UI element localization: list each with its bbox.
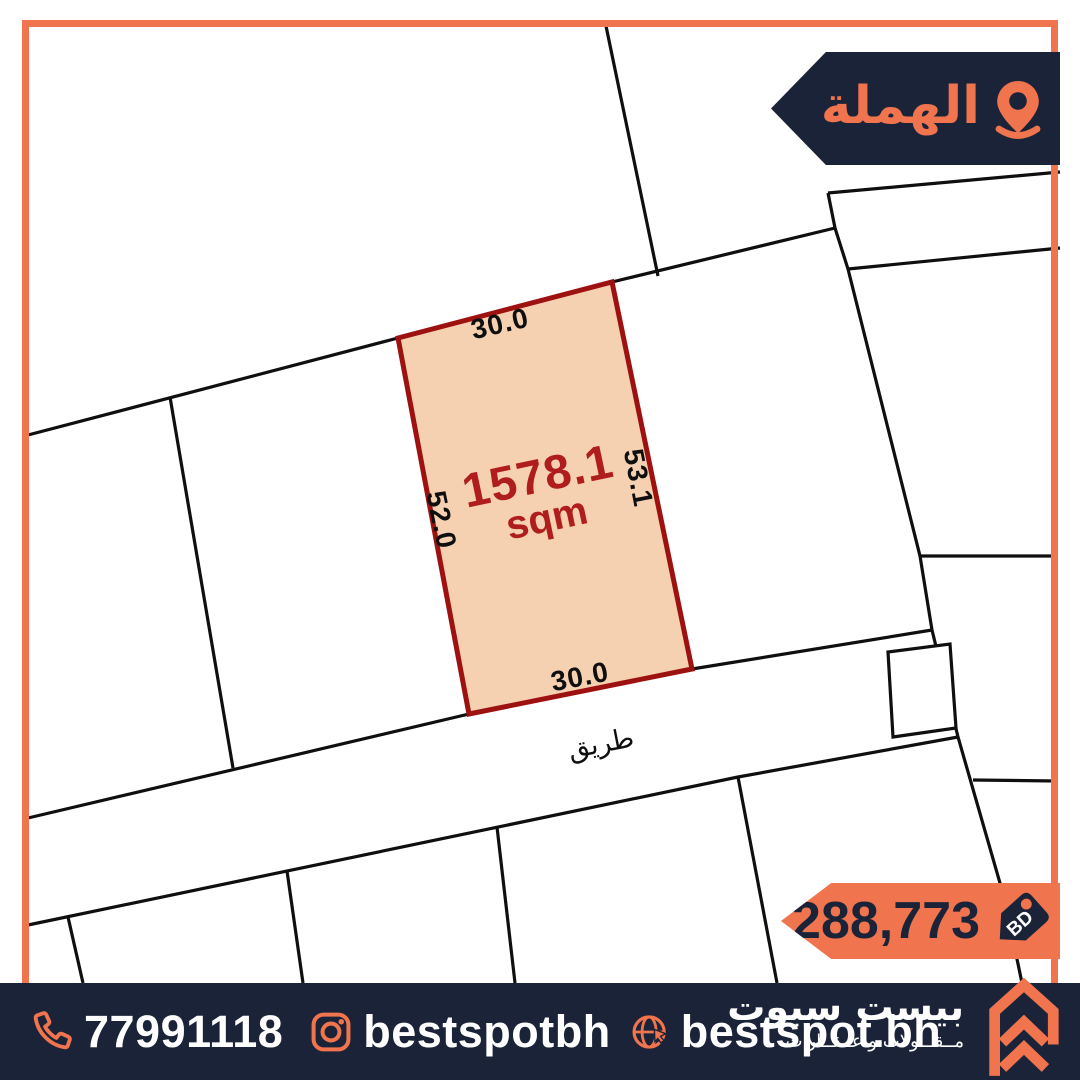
location-pin-icon	[992, 79, 1044, 139]
phone-contact: 77991118	[28, 1006, 283, 1058]
location-badge: الهملة	[771, 52, 1060, 165]
price-amount: 288,773	[792, 895, 980, 947]
instagram-contact: bestspotbh	[309, 1006, 611, 1058]
phone-icon	[28, 1009, 74, 1055]
phone-number: 77991118	[84, 1006, 283, 1058]
brand-block: بيست سبوت مــقــاولات و عــقــارات	[727, 986, 964, 1053]
instagram-handle: bestspotbh	[363, 1006, 611, 1058]
globe-cursor-icon	[629, 1011, 671, 1053]
location-name: الهملة	[821, 80, 980, 138]
price-badge: 288,773 BD	[781, 883, 1060, 959]
brand-name: بيست سبوت	[727, 986, 964, 1030]
instagram-icon	[309, 1010, 353, 1054]
flyer-canvas: 30.0 52.0 53.1 30.0 1578.1 sqm طريق الهم…	[0, 0, 1080, 1080]
price-tag-icon: BD	[988, 889, 1052, 953]
brand-tagline: مــقــاولات و عــقــارات	[727, 1030, 964, 1053]
brand-logo-icon	[980, 974, 1064, 1078]
